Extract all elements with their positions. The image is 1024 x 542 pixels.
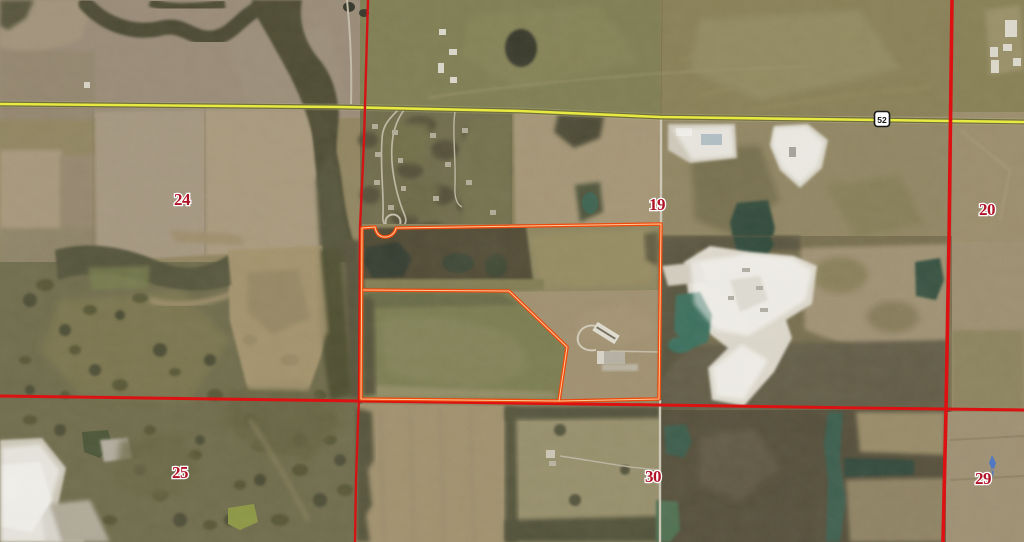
svg-text:25: 25 (172, 463, 188, 482)
svg-text:52: 52 (877, 115, 887, 125)
svg-text:30: 30 (645, 467, 661, 486)
svg-text:29: 29 (975, 469, 991, 488)
svg-text:20: 20 (979, 200, 995, 219)
svg-text:24: 24 (174, 190, 191, 209)
svg-text:19: 19 (649, 195, 665, 214)
